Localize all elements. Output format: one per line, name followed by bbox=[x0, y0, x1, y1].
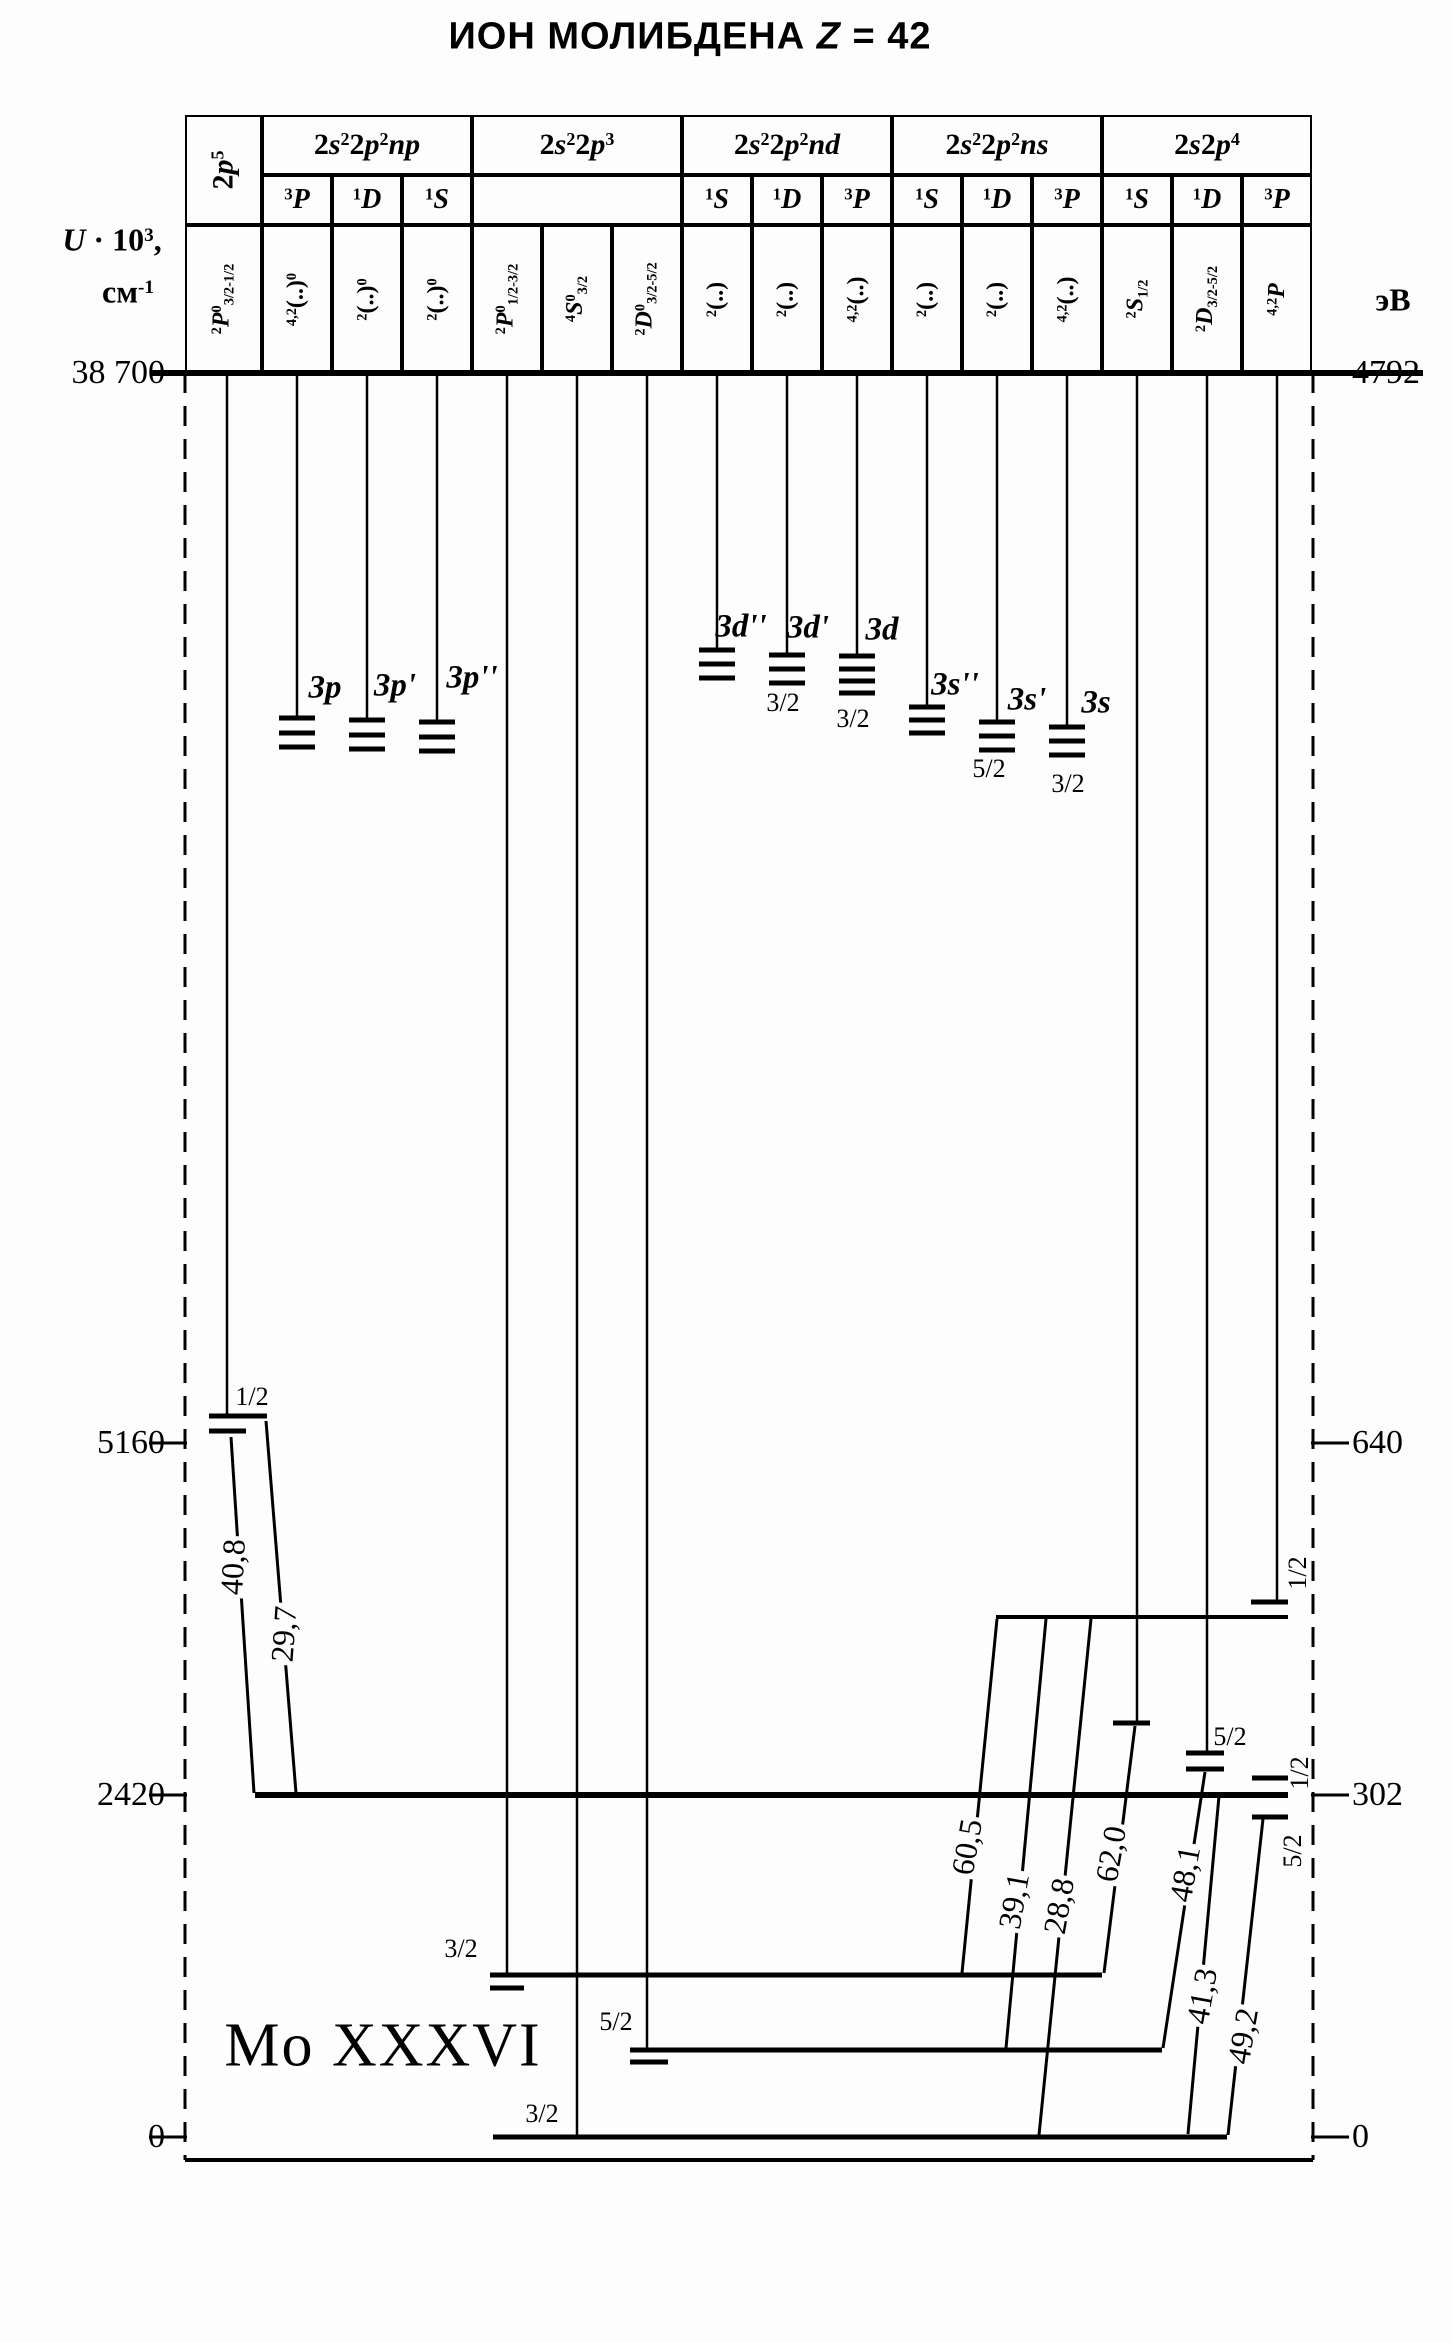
term-label: 3P bbox=[844, 184, 870, 216]
level-designation-label: 2S1/2 bbox=[1122, 280, 1152, 319]
header-level-designation-cell: 2S1/2 bbox=[1102, 225, 1172, 373]
level-group-label: 3p bbox=[309, 670, 342, 707]
left-axis-unit-line1: U · 103, bbox=[62, 222, 161, 259]
header-term-cell: 1S bbox=[682, 175, 752, 225]
level-group-label: 3s' bbox=[1008, 682, 1047, 719]
header-level-designation-cell: 4,2P bbox=[1242, 225, 1312, 373]
level-designation-label: 2(..)0 bbox=[353, 278, 380, 320]
transition-wavelength-label: 40,8 bbox=[213, 1535, 253, 1599]
grotrian-diagram-page: ИОН МОЛИБДЕНА Z = 42 U · 103, см-1 эВ Mo… bbox=[0, 0, 1452, 2343]
header-term-cell: 3P bbox=[1032, 175, 1102, 225]
left-axis-tick-label: 5160 bbox=[97, 1424, 165, 1462]
j-value-label: 5/2 bbox=[1213, 1722, 1246, 1752]
transition-line bbox=[1006, 1619, 1046, 2048]
header-level-designation-cell: 2P03/2-1/2 bbox=[185, 225, 262, 373]
level-designation-label: 2P03/2-1/2 bbox=[208, 264, 238, 335]
term-label: 1D bbox=[773, 184, 802, 216]
j-value-label: 5/2 bbox=[972, 754, 1005, 784]
j-value-label: 1/2 bbox=[235, 1382, 268, 1412]
level-designation-label: 2(..) bbox=[774, 281, 801, 316]
j-value-label: 5/2 bbox=[1278, 1834, 1308, 1867]
term-label: 3P bbox=[1264, 184, 1290, 216]
term-label: 1S bbox=[705, 184, 729, 216]
term-label: 1S bbox=[425, 184, 449, 216]
config-label: 2s22p3 bbox=[540, 128, 615, 162]
j-value-label: 3/2 bbox=[766, 688, 799, 718]
header-level-designation-cell: 2(..)0 bbox=[402, 225, 472, 373]
term-label: 1S bbox=[915, 184, 939, 216]
header-level-designation-cell: 2P01/2-3/2 bbox=[472, 225, 542, 373]
level-designation-label: 2(..) bbox=[914, 281, 941, 316]
header-term-cell: 1S bbox=[1102, 175, 1172, 225]
header-term-cell: 3P bbox=[1242, 175, 1312, 225]
level-group-label: 3s'' bbox=[931, 667, 979, 704]
j-value-label: 5/2 bbox=[599, 2007, 632, 2037]
header-level-designation-cell: 2(..) bbox=[962, 225, 1032, 373]
header-level-designation-cell: 4S03/2 bbox=[542, 225, 612, 373]
j-value-label: 3/2 bbox=[1051, 769, 1084, 799]
header-config-cell: 2s22p2ns bbox=[892, 115, 1102, 175]
level-designation-label: 4S03/2 bbox=[562, 276, 592, 322]
level-group-label: 3d'' bbox=[715, 609, 766, 646]
config-label: 2s22p2nd bbox=[734, 128, 840, 162]
header-level-designation-cell: 4,2(..) bbox=[822, 225, 892, 373]
header-term-cell: 3P bbox=[822, 175, 892, 225]
level-designation-label: 4,2(..) bbox=[843, 276, 870, 322]
header-config-cell: 2p5 bbox=[185, 115, 262, 225]
header-term-cell: 1S bbox=[402, 175, 472, 225]
right-axis-unit: эВ bbox=[1375, 282, 1410, 319]
level-designation-label: 4,2(..)0 bbox=[284, 272, 311, 325]
header-term-cell: 1D bbox=[1172, 175, 1242, 225]
left-axis-tick-label: 2420 bbox=[97, 1776, 165, 1814]
header-level-designation-cell: 2(..)0 bbox=[332, 225, 402, 373]
level-designation-label: 2D3/2-5/2 bbox=[1192, 266, 1222, 332]
header-config-cell: 2s22p2nd bbox=[682, 115, 892, 175]
right-axis-tick-label: 0 bbox=[1352, 2118, 1369, 2156]
ion-designation: Mo XXXVI bbox=[224, 2011, 541, 2082]
term-label: 3P bbox=[1054, 184, 1080, 216]
header-term-cell: 1D bbox=[752, 175, 822, 225]
transition-wavelength-label: 29,7 bbox=[263, 1602, 304, 1666]
level-designation-label: 2(..)0 bbox=[423, 278, 450, 320]
header-level-designation-cell: 4,2(..) bbox=[1032, 225, 1102, 373]
right-axis-tick-label: 640 bbox=[1352, 1424, 1403, 1462]
term-label: 3P bbox=[284, 184, 310, 216]
left-axis-tick-label: 0 bbox=[148, 2118, 165, 2156]
header-level-designation-cell: 2(..) bbox=[892, 225, 962, 373]
j-value-label: 1/2 bbox=[1285, 1756, 1315, 1789]
level-group-label: 3p' bbox=[374, 668, 416, 705]
level-group-label: 3p'' bbox=[446, 660, 497, 697]
transition-line bbox=[231, 1437, 254, 1793]
j-value-label: 3/2 bbox=[525, 2099, 558, 2129]
header-level-designation-cell: 2D03/2-5/2 bbox=[612, 225, 682, 373]
level-designation-label: 2P01/2-3/2 bbox=[492, 264, 522, 335]
j-value-label: 3/2 bbox=[836, 704, 869, 734]
header-config-cell: 2s2p4 bbox=[1102, 115, 1312, 175]
left-axis-tick-label: 38 700 bbox=[72, 354, 166, 392]
level-group-label: 3s bbox=[1081, 685, 1110, 722]
header-level-designation-cell: 4,2(..)0 bbox=[262, 225, 332, 373]
level-designation-label: 2(..) bbox=[704, 281, 731, 316]
header-term-cell-empty bbox=[472, 175, 682, 225]
j-value-label: 3/2 bbox=[444, 1934, 477, 1964]
header-config-cell: 2s22p3 bbox=[472, 115, 682, 175]
header-term-cell: 1D bbox=[332, 175, 402, 225]
right-axis-tick-label: 4792 bbox=[1352, 354, 1420, 392]
term-label: 1D bbox=[1193, 184, 1222, 216]
level-group-label: 3d' bbox=[787, 610, 829, 647]
config-label: 2s22p2np bbox=[314, 128, 420, 162]
config-label: 2s2p4 bbox=[1174, 128, 1240, 162]
term-label: 1D bbox=[353, 184, 382, 216]
left-axis-unit-line2: см-1 bbox=[102, 274, 154, 311]
level-designation-label: 2D03/2-5/2 bbox=[632, 262, 662, 335]
config-label: 2p5 bbox=[207, 151, 241, 190]
level-designation-label: 4,2(..) bbox=[1053, 276, 1080, 322]
header-level-designation-cell: 2(..) bbox=[682, 225, 752, 373]
header-term-cell: 1D bbox=[962, 175, 1032, 225]
header-term-cell: 1S bbox=[892, 175, 962, 225]
term-label: 1D bbox=[983, 184, 1012, 216]
level-designation-label: 4,2P bbox=[1263, 283, 1290, 316]
page-title: ИОН МОЛИБДЕНА Z = 42 bbox=[448, 16, 931, 59]
config-label: 2s22p2ns bbox=[945, 128, 1048, 162]
j-value-label: 1/2 bbox=[1283, 1556, 1313, 1589]
header-level-designation-cell: 2(..) bbox=[752, 225, 822, 373]
term-label: 1S bbox=[1125, 184, 1149, 216]
header-config-cell: 2s22p2np bbox=[262, 115, 472, 175]
right-axis-tick-label: 302 bbox=[1352, 1776, 1403, 1814]
header-level-designation-cell: 2D3/2-5/2 bbox=[1172, 225, 1242, 373]
transition-line bbox=[1228, 1819, 1263, 2135]
header-term-cell: 3P bbox=[262, 175, 332, 225]
level-group-label: 3d bbox=[866, 612, 899, 649]
level-designation-label: 2(..) bbox=[984, 281, 1011, 316]
